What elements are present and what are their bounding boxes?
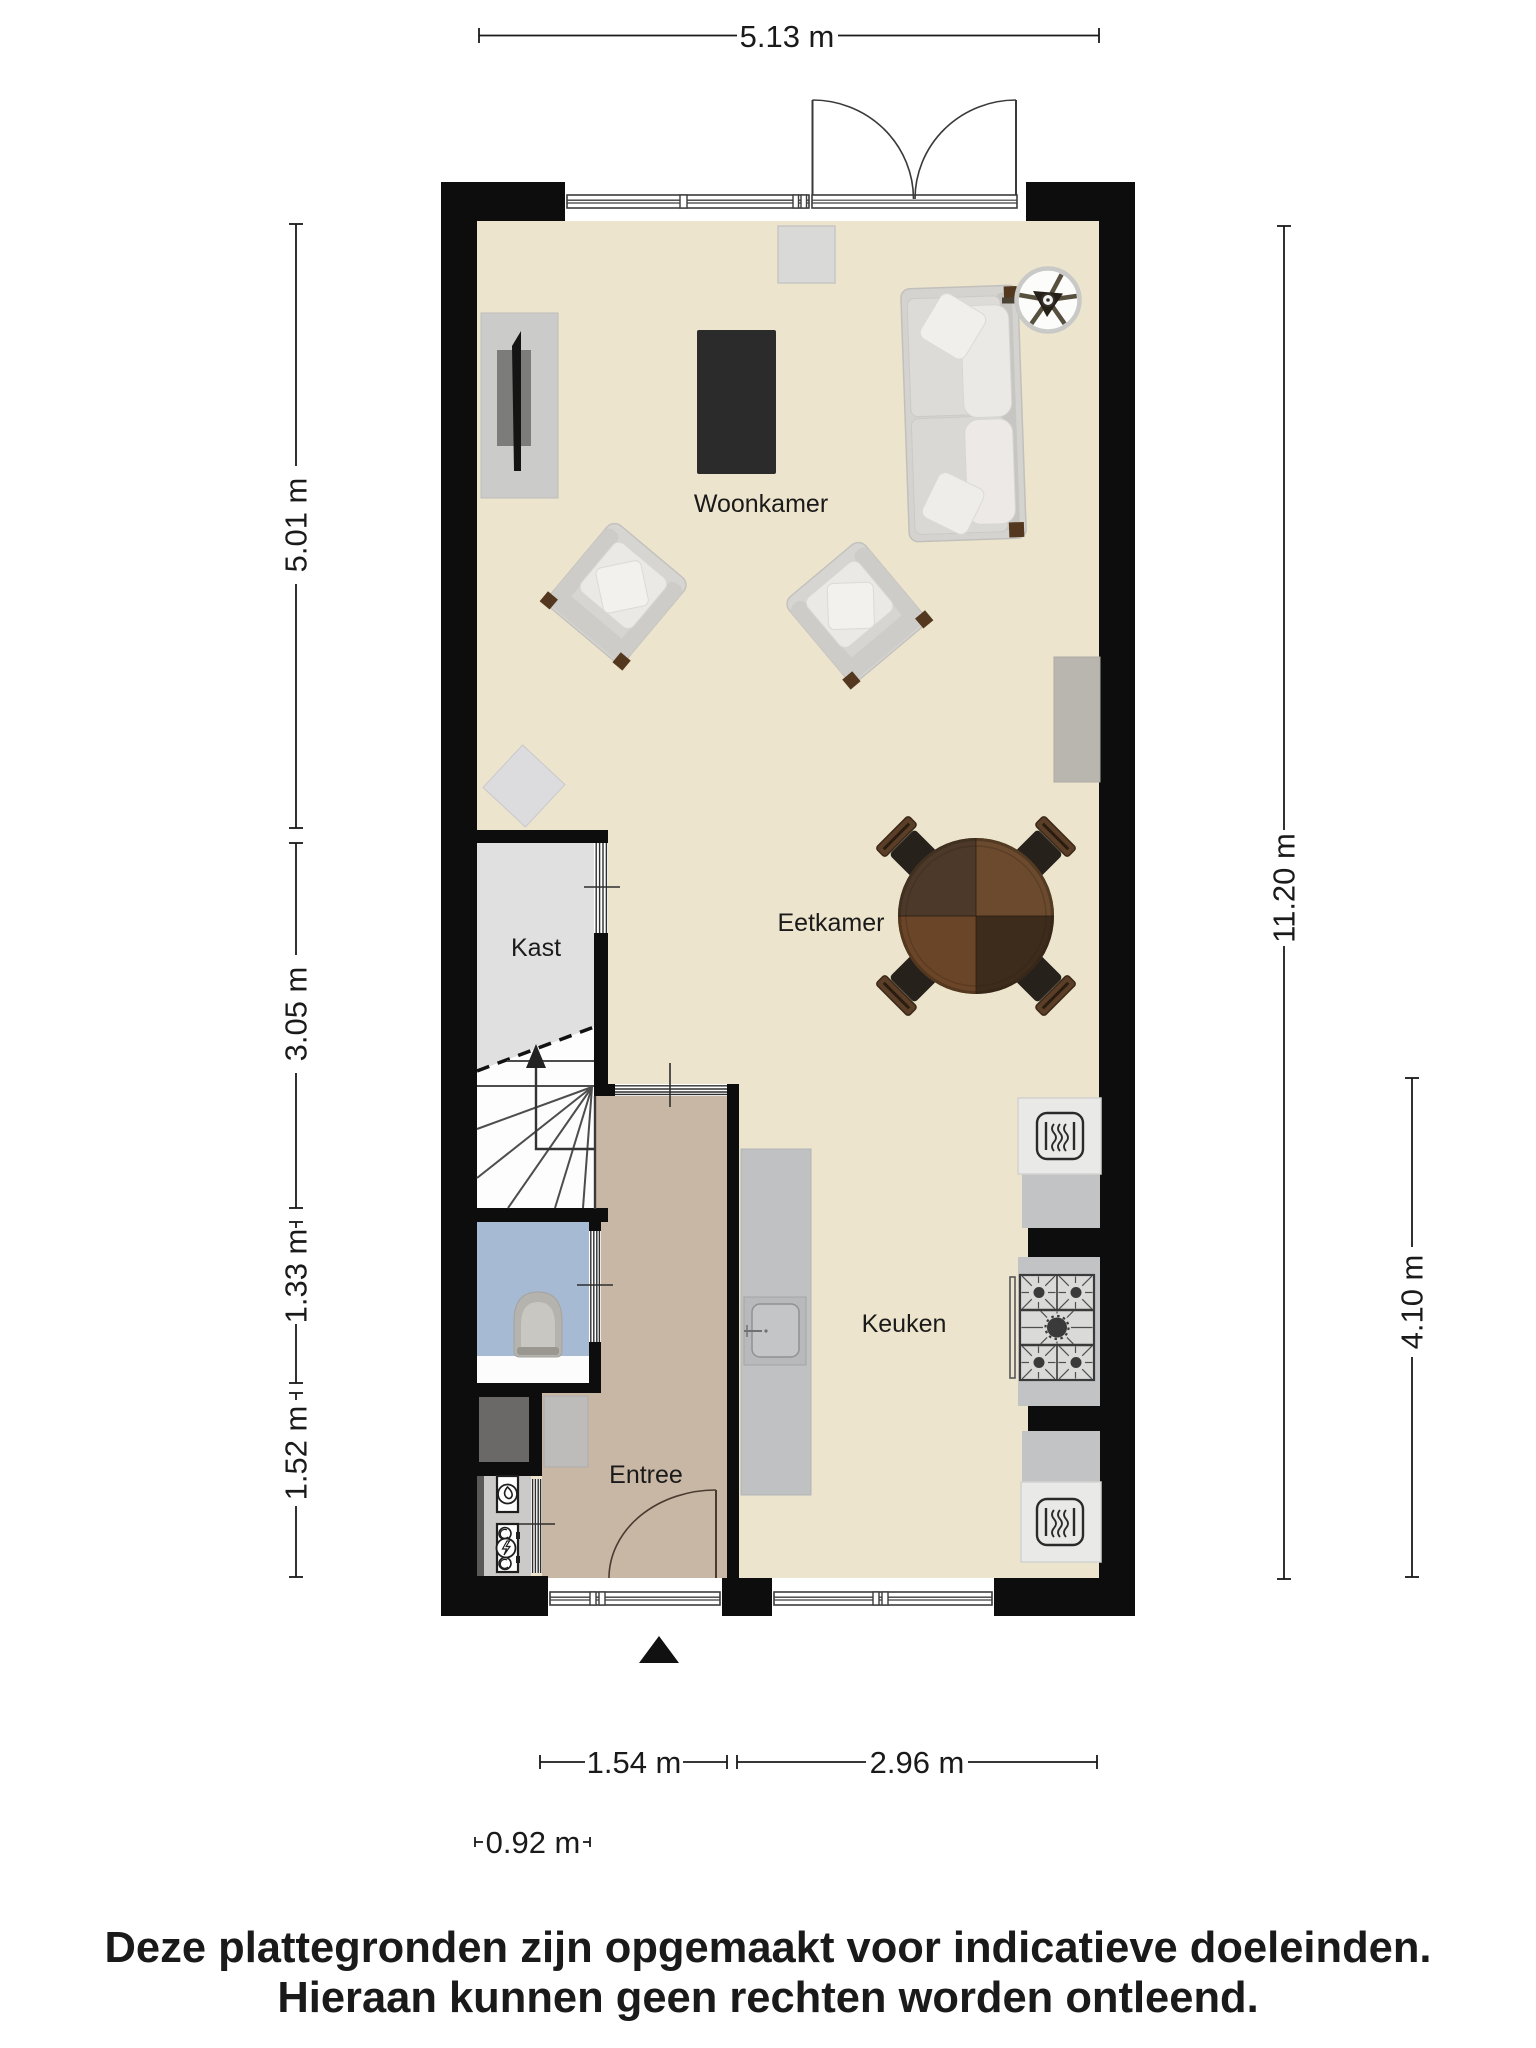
svg-text:0.92 m: 0.92 m [486,1825,581,1860]
svg-text:5.13 m: 5.13 m [740,19,835,54]
svg-text:Hieraan kunnen geen rechten wo: Hieraan kunnen geen rechten worden ontle… [277,1974,1258,2022]
svg-text:1.52 m: 1.52 m [279,1406,314,1501]
svg-text:Keuken: Keuken [862,1310,947,1338]
svg-text:Eetkamer: Eetkamer [778,909,885,937]
svg-text:Kast: Kast [511,934,561,962]
svg-text:2.96 m: 2.96 m [870,1745,965,1780]
svg-text:5.01 m: 5.01 m [279,478,314,573]
svg-text:Woonkamer: Woonkamer [694,490,828,518]
svg-text:3.05 m: 3.05 m [279,967,314,1062]
svg-text:1.54 m: 1.54 m [587,1745,682,1780]
svg-text:1.33 m: 1.33 m [279,1229,314,1324]
svg-text:Deze plattegronden zijn opgema: Deze plattegronden zijn opgemaakt voor i… [104,1924,1431,1972]
svg-text:11.20 m: 11.20 m [1267,833,1302,943]
svg-text:4.10 m: 4.10 m [1395,1255,1430,1350]
svg-text:Entree: Entree [609,1461,683,1489]
